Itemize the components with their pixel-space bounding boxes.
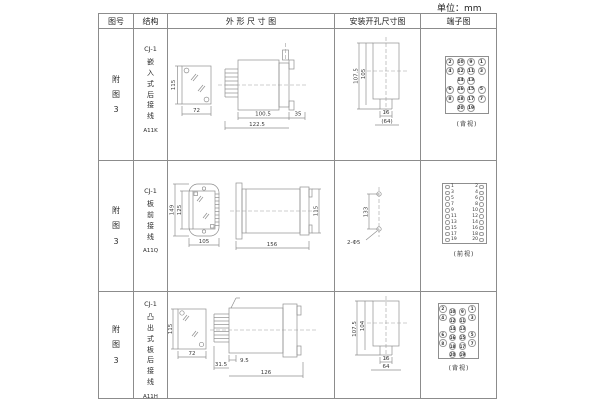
- row1-figure-cell: 附图3: [99, 29, 134, 161]
- terminal-pin: 19: [467, 104, 475, 112]
- dim-side-126: 126: [261, 370, 272, 376]
- row1-outline-drawing: 115 72 100.5 35: [168, 29, 335, 161]
- terminal-number: 19: [451, 237, 464, 243]
- terminal-pin: 17: [467, 95, 475, 103]
- terminal-pin: 6: [439, 331, 447, 339]
- terminal-pin: 14: [449, 325, 457, 333]
- terminal-pin: 4: [446, 67, 454, 75]
- row2-code-label: A11Q: [143, 248, 158, 254]
- dim-mount-64: 64: [383, 364, 390, 370]
- row3-terminal-grid: 2 10 9 1 4 12 11 3 14 13 6 16 15 5 8 18 …: [439, 305, 478, 357]
- row1-terminal-cell: 2 10 9 1 4 12 11 3 14 13 6 16 15 5 8 18 …: [421, 29, 497, 161]
- terminal-pin: [479, 202, 484, 207]
- terminal-pin: [445, 232, 450, 237]
- header-structure: 结构: [134, 14, 168, 29]
- terminal-pin: [445, 214, 450, 219]
- terminal-pin: [445, 208, 450, 213]
- dim-side-31-5: 31.5: [215, 362, 228, 368]
- dim-front-width: 72: [189, 351, 196, 357]
- terminal-pin: [445, 196, 450, 201]
- dim-mount-104: 104: [360, 320, 366, 331]
- header-structure-label: 结构: [143, 16, 159, 27]
- row1-structure-desc: 嵌入式后接线: [146, 57, 155, 122]
- row3-outline-drawing: 115 72 9.5: [168, 292, 335, 399]
- row3-mounting-cell: 107.5 104 16 64: [335, 292, 421, 399]
- row3-outline-cell: 115 72 9.5: [168, 292, 335, 399]
- header-terminal: 端子图: [421, 14, 497, 29]
- terminal-number: 20: [464, 237, 478, 243]
- row1-terminal-caption: (背视): [439, 119, 495, 128]
- dim-side-122-5: 122.5: [249, 122, 265, 128]
- terminal-pin: 20: [449, 351, 457, 359]
- row3-terminal-cell: 2 10 9 1 4 12 11 3 14 13 6 16 15 5 8 18 …: [421, 292, 497, 399]
- row1-structure-cell: CJ-1 嵌入式后接线 A11K: [134, 29, 168, 161]
- row2-outline-cell: 149 125 105 156 115: [168, 161, 335, 292]
- dim-mount-16: 16: [383, 356, 390, 362]
- terminal-pin: 18: [457, 95, 465, 103]
- terminal-pin: 3: [478, 67, 486, 75]
- terminal-pin: 5: [478, 86, 486, 94]
- row1-mounting-cell: 107.5 105 16 (64): [335, 29, 421, 161]
- header-figure-label: 图号: [108, 16, 124, 27]
- header-terminal-label: 端子图: [447, 16, 471, 27]
- row2-figure-label: 附图3: [111, 203, 122, 249]
- terminal-pin: [479, 238, 484, 243]
- terminal-pin: 11: [467, 67, 475, 75]
- terminal-pin: 7: [468, 339, 476, 347]
- terminal-pin: [479, 214, 484, 219]
- row3-figure-cell: 附图3: [99, 292, 134, 399]
- terminal-pin: [479, 208, 484, 213]
- terminal-pin: 13: [459, 325, 467, 333]
- row3-model-label: CJ-1: [144, 300, 157, 308]
- row1-terminal-grid: 2 10 9 1 4 12 11 3 14 13 6 16 15 5 8 18 …: [446, 58, 488, 114]
- dim-mount-16: 16: [383, 110, 390, 116]
- row2-mounting-drawing: 133 2-Φ5: [335, 161, 421, 292]
- terminal-pin: 12: [449, 317, 457, 325]
- row1-code-label: A11K: [143, 128, 157, 134]
- row2-figure-cell: 附图3: [99, 161, 134, 292]
- terminal-pin: [479, 196, 484, 201]
- terminal-pin: 1: [478, 58, 486, 66]
- terminal-pin: 6: [446, 86, 454, 94]
- drawing-table: 图号 结构 外 形 尺 寸 图 安装开孔尺寸图 端子图 附图3 CJ-1 嵌入式…: [98, 13, 497, 399]
- terminal-pin: 8: [446, 95, 454, 103]
- terminal-pin: 5: [468, 331, 476, 339]
- terminal-pin: 20: [457, 104, 465, 112]
- row1-mounting-drawing: 107.5 105 16 (64): [335, 29, 421, 161]
- terminal-pin: 12: [457, 67, 465, 75]
- dim-side-35: 35: [295, 112, 302, 118]
- row2-mounting-cell: 133 2-Φ5: [335, 161, 421, 292]
- row1-model-label: CJ-1: [144, 45, 157, 53]
- terminal-pin: 17: [459, 342, 467, 350]
- terminal-pin: [445, 202, 450, 207]
- header-figure: 图号: [99, 14, 134, 29]
- terminal-pin: 2: [446, 58, 454, 66]
- row2-model-label: CJ-1: [144, 187, 157, 195]
- terminal-pin: 9: [459, 308, 467, 316]
- terminal-pin: [445, 226, 450, 231]
- dim-side-156: 156: [267, 242, 278, 248]
- row3-structure-cell: CJ-1 凸出式板后接线 A11H: [134, 292, 168, 399]
- terminal-pin: [445, 185, 450, 190]
- row3-mounting-drawing: 107.5 104 16 64: [335, 292, 421, 399]
- dim-side-100-5: 100.5: [255, 112, 271, 118]
- terminal-pin: [445, 220, 450, 225]
- row3-figure-label: 附图3: [111, 322, 122, 368]
- row2-outline-drawing: 149 125 105 156 115: [168, 161, 335, 292]
- row3-structure-desc: 凸出式板后接线: [146, 312, 155, 388]
- dim-front-105: 105: [199, 239, 210, 245]
- row2-terminal-caption: (前视): [436, 249, 492, 258]
- hole-callout: 2-Φ5: [347, 240, 361, 246]
- dim-front-125: 125: [177, 204, 183, 215]
- row3-terminal-caption: (背视): [431, 363, 487, 372]
- header-outline: 外 形 尺 寸 图: [168, 14, 335, 29]
- terminal-pin: 19: [459, 351, 467, 359]
- terminal-pin: 16: [457, 86, 465, 94]
- row3-code-label: A11H: [143, 394, 158, 399]
- document-page: 单位：mm 图号 结构 外 形 尺 寸 图 安装开孔尺寸图 端子图 附图3 CJ…: [0, 0, 600, 400]
- row1-outline-cell: 115 72 100.5 35: [168, 29, 335, 161]
- terminal-pin: 11: [459, 317, 467, 325]
- dim-side-9-5: 9.5: [240, 358, 249, 364]
- row1-figure-label: 附图3: [111, 72, 122, 118]
- dim-mount-107-5: 107.5: [352, 321, 358, 337]
- terminal-pin: 4: [439, 314, 447, 322]
- header-mounting-label: 安装开孔尺寸图: [350, 16, 406, 27]
- terminal-pin: [479, 185, 484, 190]
- terminal-pin: 18: [449, 342, 457, 350]
- dim-front-149: 149: [170, 204, 176, 215]
- terminal-pin: 15: [467, 86, 475, 94]
- terminal-pin: 16: [449, 334, 457, 342]
- header-mounting: 安装开孔尺寸图: [335, 14, 421, 29]
- terminal-pin: 10: [449, 308, 457, 316]
- row2-terminal-grid: 12 34 56 78 910 1112 1314 1516 1718 1920: [444, 184, 485, 243]
- terminal-pin: 8: [439, 339, 447, 347]
- dim-mount-64: (64): [381, 119, 392, 125]
- terminal-pin: 13: [467, 77, 475, 85]
- dim-hole-spacing: 133: [364, 206, 370, 217]
- terminal-pin: 10: [457, 58, 465, 66]
- row2-structure-cell: CJ-1 板前接线 A11Q: [134, 161, 168, 292]
- row2-structure-desc: 板前接线: [146, 199, 155, 242]
- dim-mount-107-5: 107.5: [354, 68, 360, 84]
- terminal-pin: [479, 226, 484, 231]
- terminal-pin: 7: [478, 95, 486, 103]
- dim-front-height: 115: [171, 79, 177, 90]
- dim-mount-105: 105: [361, 68, 367, 79]
- terminal-pin: [479, 191, 484, 196]
- terminal-pin: 1: [468, 305, 476, 313]
- header-outline-label: 外 形 尺 寸 图: [226, 16, 276, 27]
- row2-terminal-cell: 12 34 56 78 910 1112 1314 1516 1718 1920…: [421, 161, 497, 292]
- dim-side-115: 115: [314, 205, 320, 216]
- terminal-pin: [479, 232, 484, 237]
- terminal-pin: 3: [468, 314, 476, 322]
- terminal-pin: 15: [459, 334, 467, 342]
- terminal-pin: 2: [439, 305, 447, 313]
- dim-front-height: 115: [168, 323, 174, 334]
- dim-front-width: 72: [193, 108, 200, 114]
- terminal-pin: 14: [457, 77, 465, 85]
- terminal-pin: [445, 238, 450, 243]
- terminal-pin: 9: [467, 58, 475, 66]
- terminal-pin: [445, 191, 450, 196]
- terminal-pin: [479, 220, 484, 225]
